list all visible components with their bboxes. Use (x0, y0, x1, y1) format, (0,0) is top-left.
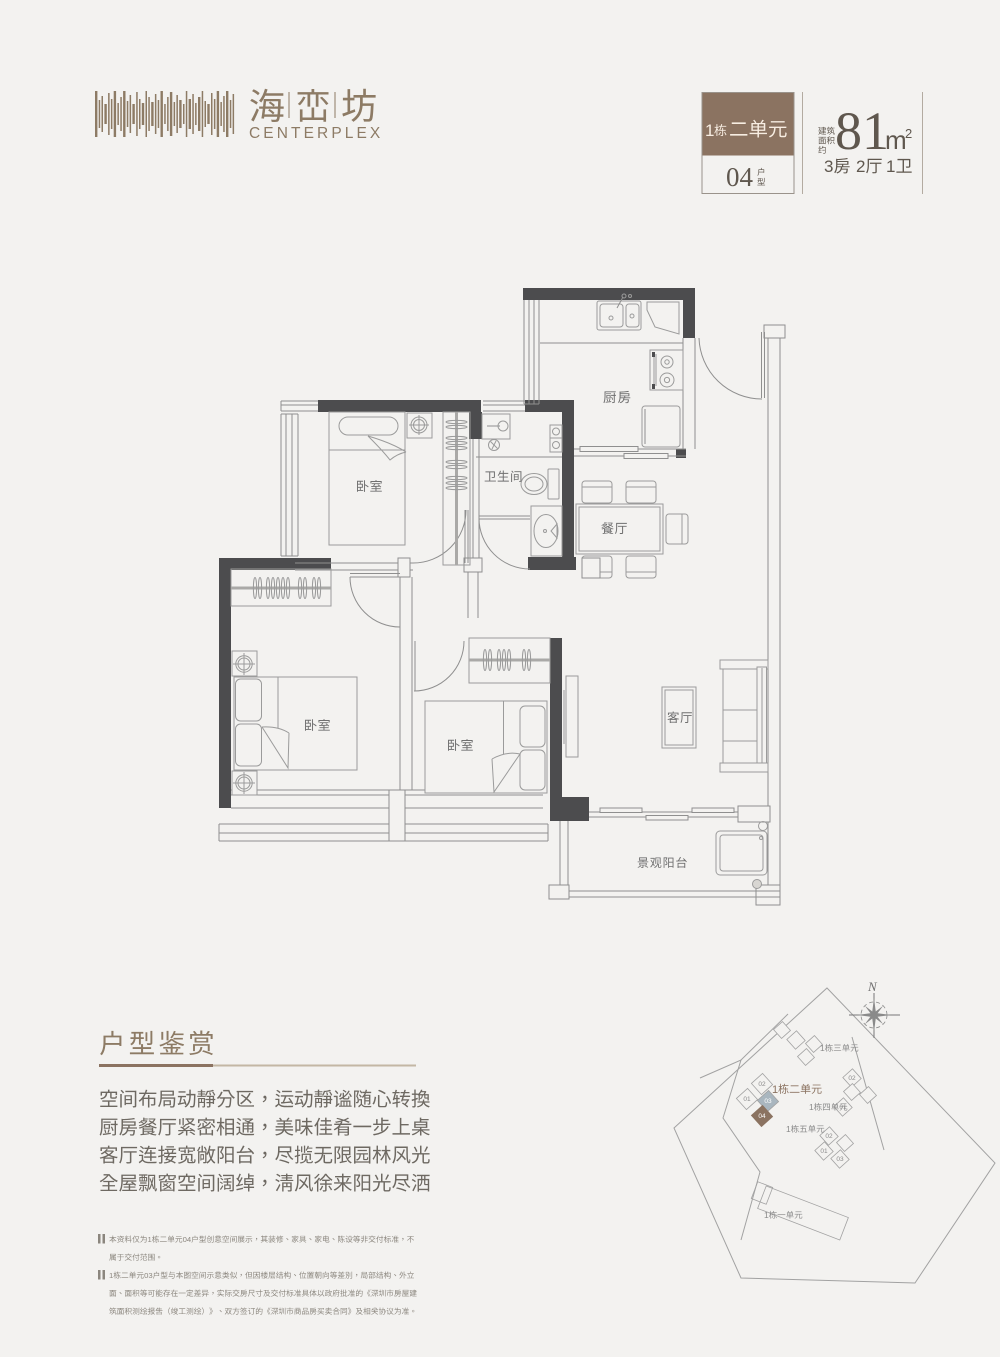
svg-text:03: 03 (144, 1271, 153, 1280)
svg-text:1: 1 (764, 1210, 769, 1220)
svg-text:2: 2 (856, 157, 865, 176)
svg-text:01: 01 (743, 1096, 751, 1103)
svg-text:1: 1 (705, 121, 714, 140)
svg-text:1: 1 (772, 1084, 778, 1096)
svg-text:81: 81 (835, 101, 889, 161)
svg-text:02: 02 (758, 1081, 766, 1088)
svg-text:01: 01 (820, 1148, 828, 1155)
svg-text:04: 04 (758, 1113, 766, 1120)
svg-text:1: 1 (820, 1043, 825, 1053)
svg-text:1: 1 (148, 1235, 152, 1244)
svg-text:02: 02 (848, 1075, 856, 1082)
svg-text:1: 1 (886, 157, 895, 176)
svg-text:02: 02 (825, 1133, 833, 1140)
svg-text:03: 03 (836, 1156, 844, 1163)
svg-text:04: 04 (183, 1235, 192, 1244)
svg-text:03: 03 (764, 1098, 772, 1105)
svg-text:04: 04 (726, 162, 754, 192)
svg-text:1: 1 (109, 1271, 113, 1280)
svg-text:m: m (885, 125, 907, 155)
svg-text:1: 1 (809, 1102, 814, 1112)
svg-text:2: 2 (905, 126, 912, 141)
svg-text:CENTERPLEX: CENTERPLEX (249, 125, 383, 142)
svg-text:N: N (867, 979, 878, 994)
svg-text:1: 1 (786, 1124, 791, 1134)
svg-text:3: 3 (824, 157, 833, 176)
